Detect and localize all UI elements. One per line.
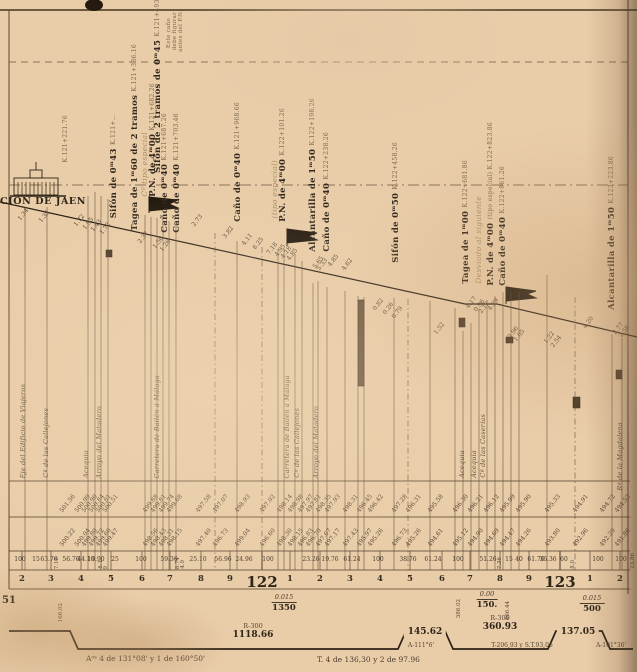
gradient-length: 150. <box>477 600 498 610</box>
structure-km: (tipo especial) K.122+823.86 <box>487 122 494 223</box>
distance-value: 51.26 <box>479 557 496 563</box>
footer-alignment-angles-left: Aᵒˢ 4 de 131°08' y 1 de 160°50' <box>86 655 205 663</box>
structure-name: Alcantarilla de 1ᵐ50 <box>607 207 617 310</box>
hectometer-number: 2 <box>317 575 323 584</box>
hectometer-number: 7 <box>467 575 473 584</box>
distance-value: 8.0 <box>571 560 577 569</box>
gradient-fraction: 0.00150. <box>477 591 498 609</box>
distance-value: 100 <box>135 557 146 563</box>
feature-label: Cª de las Callejones <box>43 408 50 478</box>
distance-value: 9 <box>104 566 110 570</box>
gradient-fraction: 0.0151350 <box>272 594 297 612</box>
alignment-length-value: 360.93 <box>483 623 517 632</box>
structure-km: K.123+223.86 <box>608 156 615 207</box>
alignment-angle-label: A-111°6' <box>408 643 434 649</box>
structure-km: K.121+493.86 <box>154 0 161 40</box>
gradient-length: 1350 <box>272 603 297 613</box>
structure-name: Sifón de 0ᵐ43 <box>109 148 119 218</box>
structure-km: K.122+861.26 <box>499 166 506 217</box>
hectometer-number: 9 <box>526 575 532 584</box>
distance-value: 61.24 <box>424 557 441 563</box>
structure-km: K.121+… <box>110 114 117 148</box>
gradient-length: 500 <box>580 604 605 614</box>
alignment-radius-label: R-300 <box>490 615 510 622</box>
alignment-angle-label: A-101°36' <box>596 643 626 649</box>
distance-value: 25.10 <box>189 557 206 563</box>
alignment-length-value: 137.05 <box>557 628 599 637</box>
structure-label: P.N. de 4ᵐ00 K.122+101.26 <box>275 108 291 222</box>
structure-label: Caño de 0ᵐ40 K.121+703.46 <box>169 113 185 233</box>
structure-label: Caño de 0ᵐ40 K.121+968.66 <box>230 102 246 222</box>
gradient-fraction: 0.015500 <box>580 595 605 613</box>
structure-name: Caño de 0ᵐ40 <box>322 183 332 252</box>
structure-label: antes del P.N. <box>173 10 189 52</box>
distance-value: 100 <box>262 557 273 563</box>
hectometer-number: 8 <box>497 575 503 584</box>
structure-km: K.122+198.26 <box>309 98 316 149</box>
structure-name: Alcantarilla de 1ᵐ50 <box>308 149 318 252</box>
distance-value: 100 <box>615 557 626 563</box>
hectometer-number: 2 <box>617 575 623 584</box>
kilometer-number: 122 <box>246 575 277 590</box>
hectometer-number: 4 <box>377 575 383 584</box>
structure-km: K.121+703.46 <box>173 113 180 164</box>
alignment-radius-label: R-300 <box>243 623 263 630</box>
feature-label: Arroyo del Matadero <box>96 406 103 478</box>
distance-value: 7.36 <box>498 557 504 569</box>
hectometer-number: 1 <box>587 575 593 584</box>
distance-value: 15 <box>505 557 513 563</box>
structure-km: K.122+238.26 <box>323 132 330 183</box>
hectometer-number: 5 <box>108 575 114 584</box>
hectometer-number: 3 <box>48 575 54 584</box>
structure-name: Caño de 0ᵐ40 <box>498 217 508 286</box>
feature-label: Acequia <box>83 450 90 478</box>
vertical-reference-number: 386.02 <box>457 599 463 618</box>
structure-km: K.121+221.76 <box>62 115 69 162</box>
distance-value: 61.24 <box>343 557 360 563</box>
structure-km: K.121+687.26 <box>161 113 168 164</box>
hectometer-number: 2 <box>19 575 25 584</box>
structure-label: Sifón de 0ᵐ43 K.121+… <box>106 114 122 218</box>
distance-value: 40 <box>515 557 523 563</box>
feature-label: Arroyo del Matadero <box>313 406 320 478</box>
gradient-slope: 0.015 <box>580 595 605 604</box>
gradient-slope: 0.015 <box>272 594 297 603</box>
structure-label: Alcantarilla de 1ᵐ50 K.123+223.86 <box>604 156 620 310</box>
left-edge-number-fragment: 51 <box>2 596 16 606</box>
structure-label: Sifón de 0ᵐ50 K.122+458.26 <box>388 142 404 263</box>
structure-name: Caño de 0ᵐ40 <box>172 164 182 233</box>
distance-value: 24.96 <box>235 557 252 563</box>
alignment-length-value: 1118.66 <box>233 631 274 640</box>
structure-name: Tagea de 1ᵐ00 <box>461 211 471 284</box>
hectometer-number: 3 <box>347 575 353 584</box>
vertical-reference-number: 166.02 <box>59 603 65 622</box>
structure-name: antes del P.N. <box>178 10 184 52</box>
distance-value: 56.96 <box>214 557 231 563</box>
distance-value: 100 <box>372 557 383 563</box>
gradient-slope: 0.00 <box>477 591 498 600</box>
station-building-icon <box>10 162 66 196</box>
structure-km: K.121+682.26 <box>149 83 156 134</box>
structure-km: K.122+458.26 <box>392 142 399 193</box>
distance-value: 100 <box>14 557 25 563</box>
kilometer-number: 123 <box>544 575 575 590</box>
structure-label: K.121+221.76 <box>58 115 74 162</box>
feature-label: Cª de las Caserías <box>480 414 487 478</box>
structure-name: Desviado al siguiente <box>474 196 483 284</box>
hectometer-number: 9 <box>227 575 233 584</box>
profile-sheet: CIÓN DE JAEN K.121+221.76Sifón de 0ᵐ43 K… <box>0 0 637 672</box>
structure-label: Caño de 0ᵐ40 K.122+861.26 <box>495 166 511 286</box>
hectometer-number: 6 <box>439 575 445 584</box>
hectometer-number: 6 <box>139 575 145 584</box>
feature-label: Carretera de Bailén á Málaga <box>284 375 291 478</box>
distance-value: 15 <box>32 557 40 563</box>
feature-label: Rª de la Magdalena <box>617 422 624 490</box>
distance-value: 100 <box>592 557 603 563</box>
distance-value: 36.36 <box>539 557 556 563</box>
distance-value: 4.9 <box>181 560 187 569</box>
structure-name: Caño de 0ᵐ40 <box>233 153 243 222</box>
station-name: CIÓN DE JAEN <box>0 196 86 207</box>
structure-name: P.N. de 4ᵐ00 <box>278 159 288 222</box>
structure-label: Caño de 0ᵐ40 K.122+238.26 <box>319 132 335 252</box>
distance-value: 23.26 <box>302 557 319 563</box>
hectometer-number: 4 <box>78 575 84 584</box>
feature-label: Acequia <box>471 450 478 478</box>
hectometer-number: 1 <box>287 575 293 584</box>
structure-km: K.121+336.16 <box>131 44 138 95</box>
feature-label: Eje del Edificio de Viajeros <box>20 384 27 478</box>
structure-km: K.121+968.66 <box>234 102 241 153</box>
feature-label: Acequia <box>459 450 466 478</box>
alignment-tangent-note: T-206,93 y S.T.93,06 <box>491 643 552 649</box>
structure-km: K.122+101.26 <box>279 108 286 159</box>
distance-value: 25 <box>111 557 119 563</box>
feature-label: Carretera de Bailén á Málaga <box>154 375 161 478</box>
distance-value: 7.18 <box>55 557 61 569</box>
alignment-length-value: 145.62 <box>404 628 446 637</box>
hectometer-number: 8 <box>198 575 204 584</box>
hectometer-number: 7 <box>167 575 173 584</box>
distance-value: 60 <box>560 557 568 563</box>
footer-alignment-angles-mid: T. 4 de 136,30 y 2 de 97.96 <box>317 656 420 664</box>
distance-value: 38.76 <box>399 557 416 563</box>
distance-value: 23.86 <box>631 553 637 569</box>
structure-name: Sifón de 0ᵐ50 <box>391 193 401 263</box>
structure-km: K.122+681.86 <box>462 160 469 211</box>
distance-value: 19.76 <box>321 557 338 563</box>
siphon-shaft <box>358 300 364 386</box>
hectometer-number: 5 <box>407 575 413 584</box>
distance-value: 100 <box>452 557 463 563</box>
feature-label: Cº de las Callejones <box>294 408 301 478</box>
